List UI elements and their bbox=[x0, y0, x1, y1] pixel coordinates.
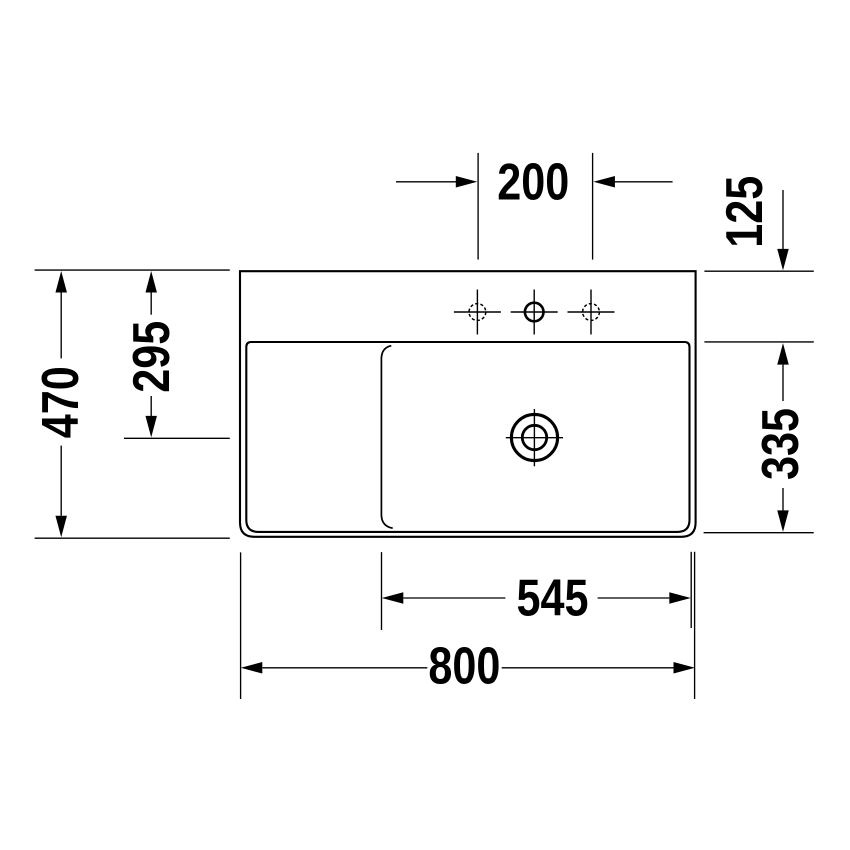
svg-text:295: 295 bbox=[123, 321, 181, 393]
svg-text:470: 470 bbox=[32, 366, 90, 438]
svg-text:200: 200 bbox=[497, 154, 569, 212]
svg-text:335: 335 bbox=[752, 408, 810, 480]
svg-text:545: 545 bbox=[517, 570, 589, 628]
svg-text:125: 125 bbox=[716, 176, 774, 248]
svg-text:800: 800 bbox=[428, 638, 500, 696]
